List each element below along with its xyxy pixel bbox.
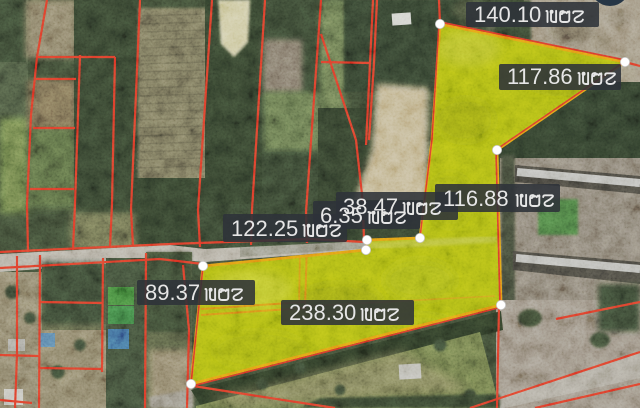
svg-text:140.10: 140.10 — [474, 2, 541, 27]
svg-text:117.86: 117.86 — [507, 64, 573, 89]
svg-text:116.88: 116.88 — [443, 186, 509, 211]
svg-text:122.25: 122.25 — [231, 216, 298, 241]
svg-text:238.30: 238.30 — [289, 300, 356, 325]
svg-text:89.37: 89.37 — [145, 280, 200, 305]
svg-text:6.35: 6.35 — [320, 203, 363, 228]
